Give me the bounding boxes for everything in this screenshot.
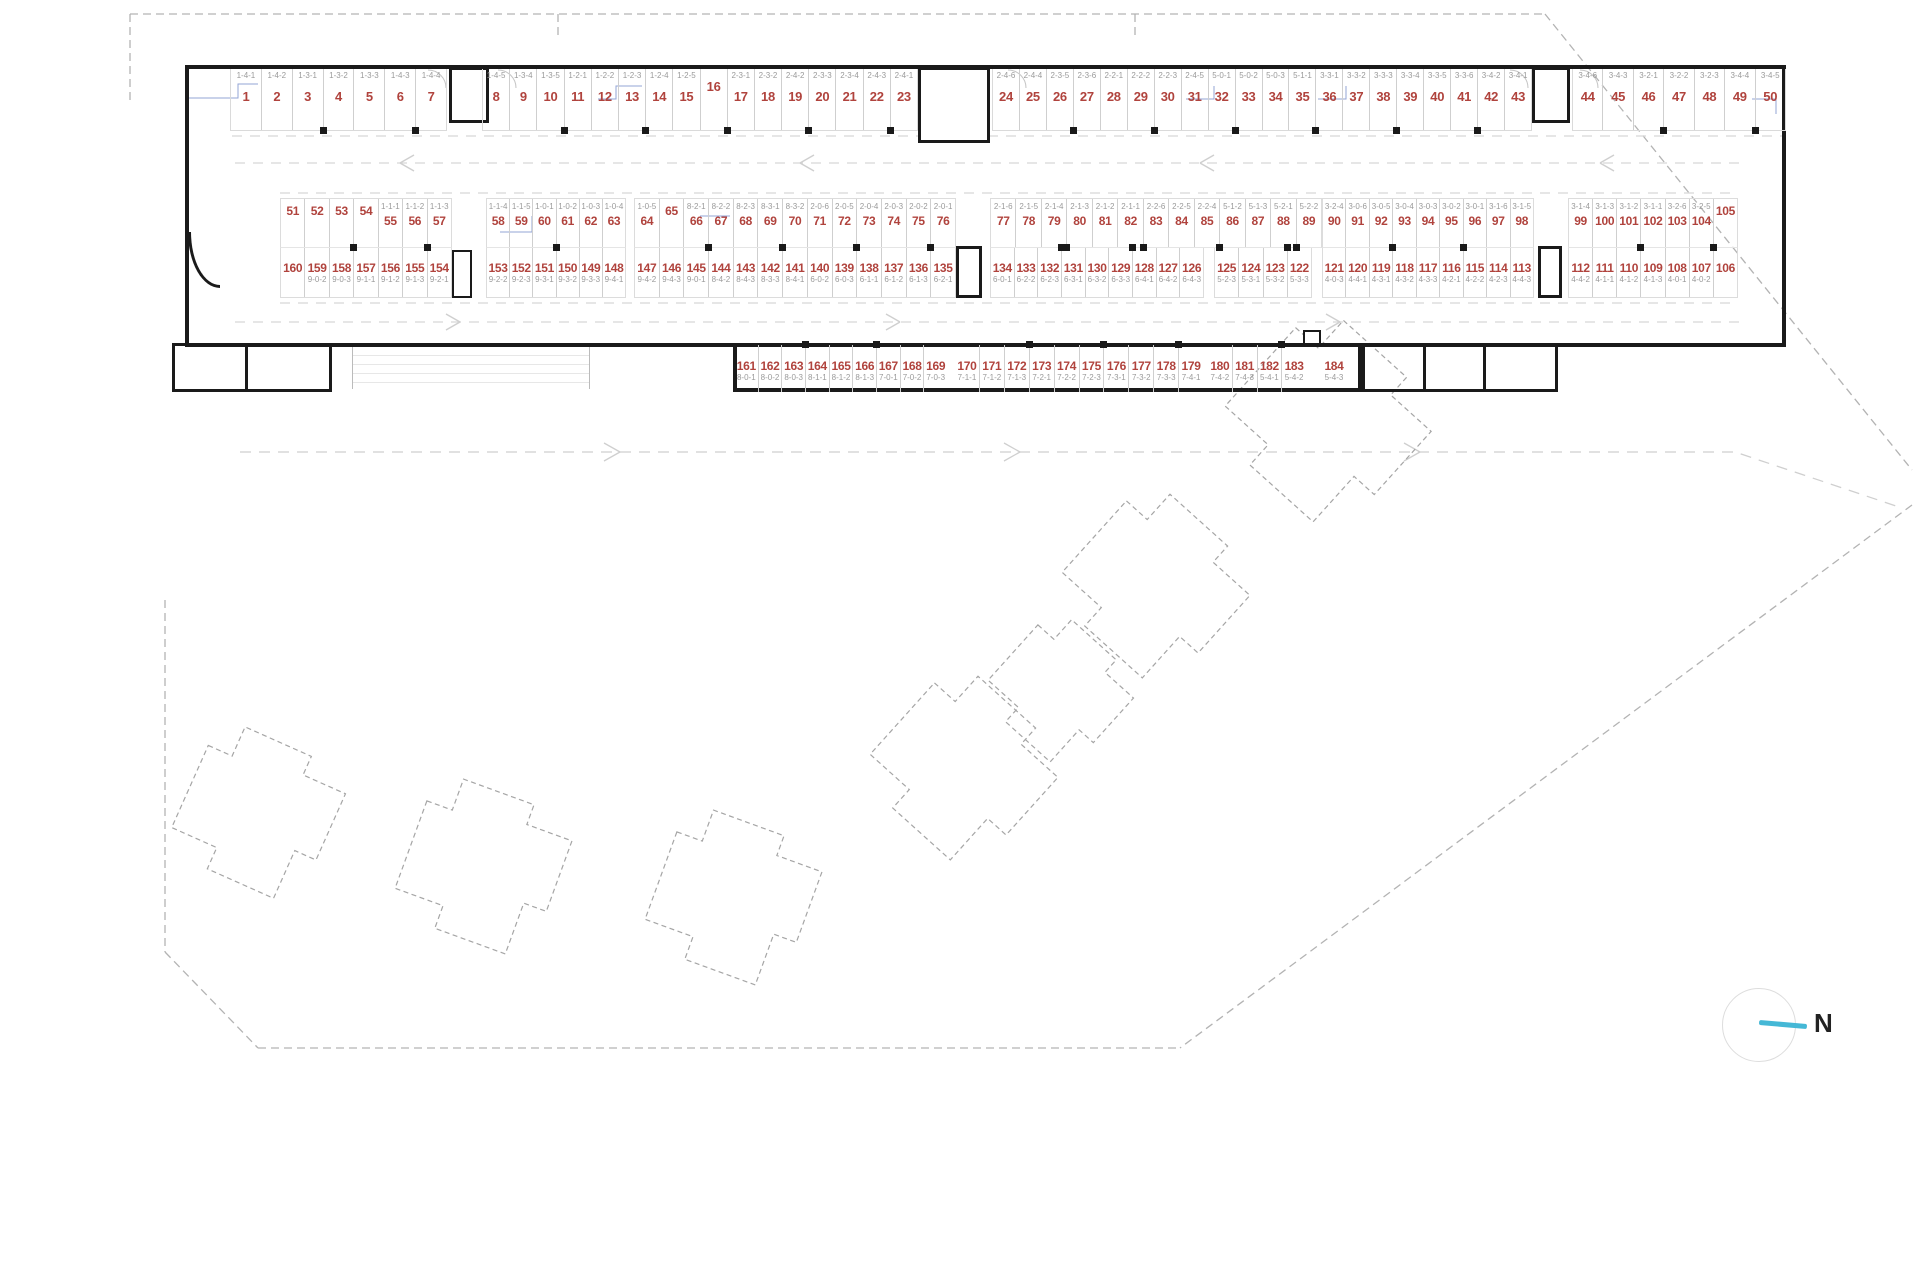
space-number: 43 — [1511, 90, 1525, 104]
parking-space: 1717-1-2 — [979, 345, 1004, 392]
space-number: 32 — [1215, 90, 1229, 104]
space-number: 165 — [831, 359, 850, 373]
parking-space: 1114-1-1 — [1592, 248, 1616, 297]
parking-space: 53 — [329, 199, 353, 247]
parking-space: 3-2-146 — [1633, 69, 1663, 130]
parking-group: 1-0-564658-2-1668-2-2678-2-3688-3-1698-3… — [634, 198, 956, 248]
space-number: 54 — [360, 204, 373, 218]
space-number: 14 — [652, 90, 666, 104]
space-number: 98 — [1515, 214, 1528, 228]
column-pillar — [1284, 244, 1291, 251]
parking-space: 1-0-261 — [556, 199, 579, 247]
parking-space: 3-4-242 — [1477, 69, 1504, 130]
space-number: 72 — [838, 214, 851, 228]
parking-space: 1-4-22 — [261, 69, 292, 130]
parking-space: 1184-3-2 — [1392, 248, 1415, 297]
space-number: 111 — [1596, 261, 1614, 275]
space-number: 40 — [1430, 90, 1444, 104]
parking-space: 3-3-237 — [1342, 69, 1369, 130]
space-number: 122 — [1290, 261, 1309, 275]
space-code: 5-4-3 — [1325, 373, 1344, 383]
parking-space: 2-4-219 — [781, 69, 808, 130]
parking-space: 1074-0-2 — [1689, 248, 1713, 297]
space-number: 6 — [397, 90, 404, 104]
parking-space: 2-2-128 — [1100, 69, 1127, 130]
parking-space: 1727-1-3 — [1004, 345, 1029, 392]
space-number: 152 — [512, 261, 531, 275]
parking-space: 3-2-490 — [1323, 199, 1345, 247]
space-code: 1-4-5 — [487, 71, 506, 81]
space-code: 2-0-3 — [884, 202, 903, 212]
parking-space: 1336-2-2 — [1014, 248, 1038, 297]
parking-space: 2-1-182 — [1117, 199, 1142, 247]
space-code: 2-1-2 — [1096, 202, 1115, 212]
parking-space: 1529-2-3 — [509, 248, 532, 297]
space-number: 30 — [1161, 90, 1175, 104]
space-code: 3-3-4 — [1401, 71, 1420, 81]
parking-space: 1-3-13 — [292, 69, 323, 130]
space-number: 8 — [493, 90, 500, 104]
column-pillar — [561, 127, 568, 134]
space-code: 7-0-1 — [879, 373, 898, 383]
stair-core — [452, 250, 472, 298]
space-number: 151 — [535, 261, 554, 275]
space-number: 177 — [1132, 359, 1151, 373]
space-code: 1-3-1 — [298, 71, 317, 81]
parking-group: 2-1-6772-1-5782-1-4792-1-3802-1-2812-1-1… — [990, 198, 1322, 248]
space-code: 9-0-2 — [308, 275, 327, 285]
space-number: 84 — [1175, 214, 1188, 228]
annex-left — [172, 343, 332, 392]
space-number: 92 — [1375, 214, 1388, 228]
column-pillar — [805, 127, 812, 134]
parking-space: 3-4-143 — [1504, 69, 1531, 130]
parking-space: 1599-0-2 — [304, 248, 328, 297]
column-pillar — [1752, 127, 1759, 134]
column-pillar — [350, 244, 357, 251]
space-number: 167 — [879, 359, 898, 373]
space-number: 77 — [997, 214, 1010, 228]
space-number: 178 — [1157, 359, 1176, 373]
space-number: 27 — [1080, 90, 1094, 104]
space-code: 2-0-5 — [835, 202, 854, 212]
space-number: 96 — [1468, 214, 1481, 228]
parking-space: 160 — [281, 248, 304, 297]
space-number: 36 — [1322, 90, 1336, 104]
parking-space: 3-1-499 — [1569, 199, 1592, 247]
space-code: 1-3-4 — [514, 71, 533, 81]
parking-space: 2-0-671 — [807, 199, 832, 247]
parking-space: 5-0-132 — [1208, 69, 1235, 130]
parking-space: 1845-4-3 — [1310, 345, 1358, 392]
parking-space: 3-4-345 — [1602, 69, 1632, 130]
space-code: 6-2-2 — [1017, 275, 1036, 285]
parking-space: 1539-2-2 — [487, 248, 509, 297]
stair-core — [956, 246, 982, 298]
space-code: 7-2-1 — [1032, 373, 1051, 383]
space-code: 5-2-1 — [1274, 202, 1293, 212]
space-code: 9-1-1 — [357, 275, 376, 285]
space-code: 2-1-6 — [994, 202, 1013, 212]
parking-space: 1-3-35 — [353, 69, 384, 130]
space-code: 1-3-5 — [541, 71, 560, 81]
space-number: 10 — [544, 90, 558, 104]
parking-space: 5-0-233 — [1235, 69, 1262, 130]
space-code: 7-3-1 — [1107, 373, 1126, 383]
parking-space: 1-0-362 — [579, 199, 602, 247]
annex-right — [1362, 343, 1558, 392]
parking-space: 1-0-160 — [532, 199, 555, 247]
space-code: 7-2-2 — [1057, 373, 1076, 383]
space-number: 118 — [1395, 261, 1413, 275]
space-number: 147 — [637, 261, 656, 275]
space-number: 24 — [999, 90, 1013, 104]
parking-space: 2-2-229 — [1127, 69, 1154, 130]
space-code: 2-3-1 — [731, 71, 750, 81]
parking-group: 3-1-4993-1-31003-1-21013-1-11023-2-61033… — [1568, 198, 1738, 248]
parking-space: 3-2-6103 — [1665, 199, 1689, 247]
column-pillar — [1710, 244, 1717, 251]
space-number: 95 — [1445, 214, 1458, 228]
space-number: 132 — [1040, 261, 1059, 275]
space-code: 2-1-4 — [1045, 202, 1064, 212]
parking-space: 3-4-449 — [1724, 69, 1754, 130]
column-pillar — [1151, 127, 1158, 134]
space-number: 46 — [1642, 90, 1656, 104]
column-pillar — [927, 244, 934, 251]
space-number: 127 — [1158, 261, 1177, 275]
space-number: 3 — [304, 90, 311, 104]
space-number: 172 — [1007, 359, 1026, 373]
space-number: 136 — [909, 261, 928, 275]
parking-space: 3-0-691 — [1345, 199, 1368, 247]
parking-group: 1346-0-11336-2-21326-2-31316-3-11306-3-2… — [990, 248, 1204, 298]
space-code: 2-3-6 — [1077, 71, 1096, 81]
parking-space: 3-4-644 — [1573, 69, 1602, 130]
parking-space: 2-3-117 — [727, 69, 754, 130]
space-number: 112 — [1571, 261, 1589, 275]
space-number: 67 — [715, 214, 728, 228]
space-code: 9-2-2 — [489, 275, 508, 285]
stair-core — [1538, 246, 1562, 298]
parking-space: 1235-3-2 — [1263, 248, 1287, 297]
space-number: 142 — [761, 261, 780, 275]
column-pillar — [1460, 244, 1467, 251]
space-code: 3-4-4 — [1730, 71, 1749, 81]
space-number: 124 — [1241, 261, 1260, 275]
space-code: 9-3-3 — [581, 275, 600, 285]
parking-space: 8-3-270 — [782, 199, 807, 247]
space-code: 7-4-3 — [1235, 373, 1254, 383]
parking-space: 1316-3-1 — [1061, 248, 1085, 297]
parking-space: 2-4-624 — [993, 69, 1019, 130]
space-code: 4-1-3 — [1644, 275, 1663, 285]
space-code: 3-1-6 — [1489, 202, 1508, 212]
parking-space: 2-1-479 — [1041, 199, 1066, 247]
space-code: 8-2-2 — [712, 202, 731, 212]
space-code: 5-4-2 — [1285, 373, 1304, 383]
space-number: 171 — [982, 359, 1001, 373]
space-number: 55 — [384, 214, 397, 228]
parking-space: 1104-1-2 — [1616, 248, 1640, 297]
space-code: 3-2-3 — [1700, 71, 1719, 81]
parking-space: 1396-0-3 — [832, 248, 857, 297]
space-code: 6-0-2 — [810, 275, 829, 285]
space-code: 1-2-5 — [677, 71, 696, 81]
space-number: 175 — [1082, 359, 1101, 373]
column-pillar — [873, 341, 880, 348]
parking-group: 1-1-4581-1-5591-0-1601-0-2611-0-3621-0-4… — [486, 198, 626, 248]
space-number: 161 — [737, 359, 756, 373]
parking-space: 3-4-550 — [1755, 69, 1785, 130]
space-number: 63 — [608, 214, 621, 228]
space-code: 3-2-2 — [1670, 71, 1689, 81]
parking-space: 1144-2-3 — [1486, 248, 1509, 297]
column-pillar — [424, 244, 431, 251]
space-code: 7-4-2 — [1211, 373, 1230, 383]
parking-group: 3-2-4903-0-6913-0-5923-0-4933-0-3943-0-2… — [1322, 198, 1534, 248]
parking-space: 1296-3-3 — [1108, 248, 1132, 297]
space-code: 4-0-3 — [1325, 275, 1344, 285]
stair-core — [1532, 67, 1570, 123]
space-code: 6-0-1 — [993, 275, 1012, 285]
parking-space: 1194-3-1 — [1369, 248, 1392, 297]
space-code: 8-1-3 — [855, 373, 874, 383]
space-code: 2-4-3 — [867, 71, 886, 81]
space-code: 2-2-6 — [1147, 202, 1166, 212]
space-number: 42 — [1484, 90, 1498, 104]
parking-space: 8-2-166 — [683, 199, 708, 247]
parking-space: 2-0-176 — [930, 199, 955, 247]
space-number: 12 — [598, 90, 612, 104]
space-code: 7-1-2 — [983, 373, 1002, 383]
parking-space: 1214-0-3 — [1323, 248, 1345, 297]
space-number: 144 — [711, 261, 730, 275]
space-number: 60 — [538, 214, 551, 228]
parking-space: 1767-3-1 — [1103, 345, 1128, 392]
parking-space: 3-3-641 — [1450, 69, 1477, 130]
space-code: 3-4-6 — [1578, 71, 1597, 81]
space-code: 9-3-2 — [558, 275, 577, 285]
parking-space: 3-2-247 — [1663, 69, 1693, 130]
space-code: 2-3-2 — [759, 71, 778, 81]
annex-wall — [245, 346, 248, 389]
space-number: 128 — [1135, 261, 1154, 275]
space-code: 3-4-5 — [1761, 71, 1780, 81]
parking-space: 2-0-374 — [881, 199, 906, 247]
parking-space: 2-2-683 — [1143, 199, 1168, 247]
space-code: 8-2-1 — [687, 202, 706, 212]
parking-space: 54 — [353, 199, 377, 247]
column-pillar — [1129, 244, 1136, 251]
space-code: 8-1-2 — [832, 373, 851, 383]
space-number: 39 — [1403, 90, 1417, 104]
space-code: 2-4-4 — [1024, 71, 1043, 81]
space-number: 141 — [785, 261, 804, 275]
space-number: 79 — [1048, 214, 1061, 228]
parking-space: 1817-4-3 — [1232, 345, 1257, 392]
space-code: 8-1-1 — [808, 373, 827, 383]
column-pillar — [724, 127, 731, 134]
parking-space: 1559-1-3 — [402, 248, 426, 297]
space-number: 110 — [1620, 261, 1638, 275]
space-code: 8-3-1 — [761, 202, 780, 212]
parking-space: 1255-2-3 — [1215, 248, 1238, 297]
space-code: 2-2-3 — [1158, 71, 1177, 81]
parking-space: 3-0-394 — [1416, 199, 1439, 247]
space-number: 78 — [1022, 214, 1035, 228]
space-code: 8-4-2 — [712, 275, 731, 285]
site-road — [240, 443, 1902, 508]
space-code: 6-4-3 — [1182, 275, 1201, 285]
parking-group: 2-4-6242-4-4252-3-5262-3-6272-2-1282-2-2… — [992, 69, 1532, 131]
space-number: 102 — [1643, 214, 1662, 228]
column-pillar — [642, 127, 649, 134]
space-code: 1-4-1 — [237, 71, 256, 81]
parking-space: 2-1-578 — [1015, 199, 1040, 247]
space-number: 25 — [1026, 90, 1040, 104]
parking-space: 1406-0-2 — [807, 248, 832, 297]
space-code: 3-2-4 — [1325, 202, 1344, 212]
parking-space: 1459-0-1 — [683, 248, 708, 297]
space-code: 8-3-3 — [761, 275, 780, 285]
space-number: 53 — [335, 204, 348, 218]
space-code: 5-4-1 — [1260, 373, 1279, 383]
parking-space: 5-1-135 — [1288, 69, 1315, 130]
space-code: 4-2-1 — [1442, 275, 1461, 285]
parking-space: 2-3-421 — [835, 69, 862, 130]
parking-space: 1-2-313 — [618, 69, 645, 130]
parking-space: 1-2-212 — [591, 69, 618, 130]
parking-space: 2-2-584 — [1168, 199, 1193, 247]
space-code: 9-4-3 — [662, 275, 681, 285]
space-code: 2-0-2 — [909, 202, 928, 212]
space-code: 1-4-3 — [391, 71, 410, 81]
space-code: 6-0-3 — [835, 275, 854, 285]
space-number: 66 — [690, 214, 703, 228]
space-code: 6-1-3 — [909, 275, 928, 285]
space-code: 5-2-2 — [1300, 202, 1319, 212]
parking-space: 1245-3-1 — [1238, 248, 1262, 297]
column-pillar — [705, 244, 712, 251]
parking-group: 1124-4-21114-1-11104-1-21094-1-31084-0-1… — [1568, 248, 1738, 298]
column-pillar — [553, 244, 560, 251]
parking-space: 1-3-49 — [509, 69, 536, 130]
space-number: 18 — [761, 90, 775, 104]
parking-space: 1638-0-3 — [781, 345, 805, 392]
parking-group: 1539-2-21529-2-31519-3-11509-3-21499-3-3… — [486, 248, 626, 298]
space-code: 3-1-2 — [1620, 202, 1639, 212]
space-number: 64 — [640, 214, 653, 228]
parking-space: 2-4-425 — [1019, 69, 1046, 130]
space-code: 2-3-4 — [840, 71, 859, 81]
parking-space: 1164-2-1 — [1439, 248, 1462, 297]
space-number: 59 — [515, 214, 528, 228]
parking-space: 1697-0-3 — [923, 345, 947, 392]
space-code: 8-3-2 — [786, 202, 805, 212]
space-number: 5 — [366, 90, 373, 104]
space-number: 26 — [1053, 90, 1067, 104]
parking-space: 16 — [700, 69, 727, 130]
space-number: 1 — [242, 90, 249, 104]
space-number: 169 — [926, 359, 945, 373]
parking-group: 1255-2-31245-3-11235-3-21225-3-3 — [1214, 248, 1312, 298]
parking-space: 2-2-330 — [1154, 69, 1181, 130]
space-code: 3-0-3 — [1419, 202, 1438, 212]
parking-group: 515253541-1-1551-1-2561-1-357 — [280, 198, 452, 248]
parking-space: 1835-4-2 — [1281, 345, 1306, 392]
parking-space: 1428-3-3 — [757, 248, 782, 297]
column-pillar — [802, 341, 809, 348]
parking-space: 1-4-47 — [415, 69, 446, 130]
parking-space: 1204-4-1 — [1345, 248, 1368, 297]
building-outline — [387, 770, 579, 962]
parking-space: 3-3-439 — [1396, 69, 1423, 130]
parking-space: 1306-3-2 — [1085, 248, 1109, 297]
parking-space: 2-3-320 — [808, 69, 835, 130]
space-code: 5-2-3 — [1217, 275, 1236, 285]
space-code: 4-3-1 — [1372, 275, 1391, 285]
parking-space: 1-0-564 — [635, 199, 659, 247]
parking-space: 1825-4-1 — [1257, 345, 1282, 392]
parking-group: 1845-4-3 — [1310, 345, 1358, 392]
parking-space: 1276-4-2 — [1156, 248, 1180, 297]
parking-space: 1225-3-3 — [1287, 248, 1311, 297]
parking-space: 1-1-559 — [509, 199, 532, 247]
space-code: 5-3-1 — [1242, 275, 1261, 285]
space-number: 61 — [561, 214, 574, 228]
parking-space: 3-1-1102 — [1640, 199, 1664, 247]
parking-space: 1438-4-3 — [733, 248, 758, 297]
space-number: 181 — [1235, 359, 1254, 373]
space-number: 87 — [1252, 214, 1265, 228]
space-code: 5-1-1 — [1293, 71, 1312, 81]
space-code: 1-3-2 — [329, 71, 348, 81]
parking-space: 1737-2-1 — [1029, 345, 1054, 392]
space-number: 134 — [993, 261, 1012, 275]
space-number: 9 — [520, 90, 527, 104]
space-number: 29 — [1134, 90, 1148, 104]
column-pillar — [1070, 127, 1077, 134]
space-number: 157 — [356, 261, 375, 275]
space-code: 6-1-1 — [860, 275, 879, 285]
parking-space: 3-0-196 — [1463, 199, 1486, 247]
space-number: 83 — [1150, 214, 1163, 228]
space-code: 2-0-1 — [934, 202, 953, 212]
building-outline — [637, 801, 829, 993]
space-number: 129 — [1111, 261, 1130, 275]
space-code: 9-4-1 — [605, 275, 624, 285]
parking-space: 3-2-348 — [1694, 69, 1724, 130]
space-number: 104 — [1692, 214, 1711, 228]
space-number: 114 — [1489, 261, 1507, 275]
space-number: 34 — [1269, 90, 1283, 104]
space-code: 9-3-1 — [535, 275, 554, 285]
space-number: 68 — [739, 214, 752, 228]
space-code: 2-4-5 — [1185, 71, 1204, 81]
space-number: 33 — [1242, 90, 1256, 104]
space-code: 5-1-3 — [1249, 202, 1268, 212]
space-number: 125 — [1217, 261, 1236, 275]
space-number: 140 — [810, 261, 829, 275]
space-number: 183 — [1285, 359, 1304, 373]
space-number: 19 — [788, 90, 802, 104]
parking-group: 3-4-6443-4-3453-2-1463-2-2473-2-3483-4-4… — [1572, 69, 1786, 131]
space-number: 86 — [1226, 214, 1239, 228]
space-number: 135 — [934, 261, 953, 275]
column-pillar — [1474, 127, 1481, 134]
parking-space: 2-1-380 — [1066, 199, 1091, 247]
